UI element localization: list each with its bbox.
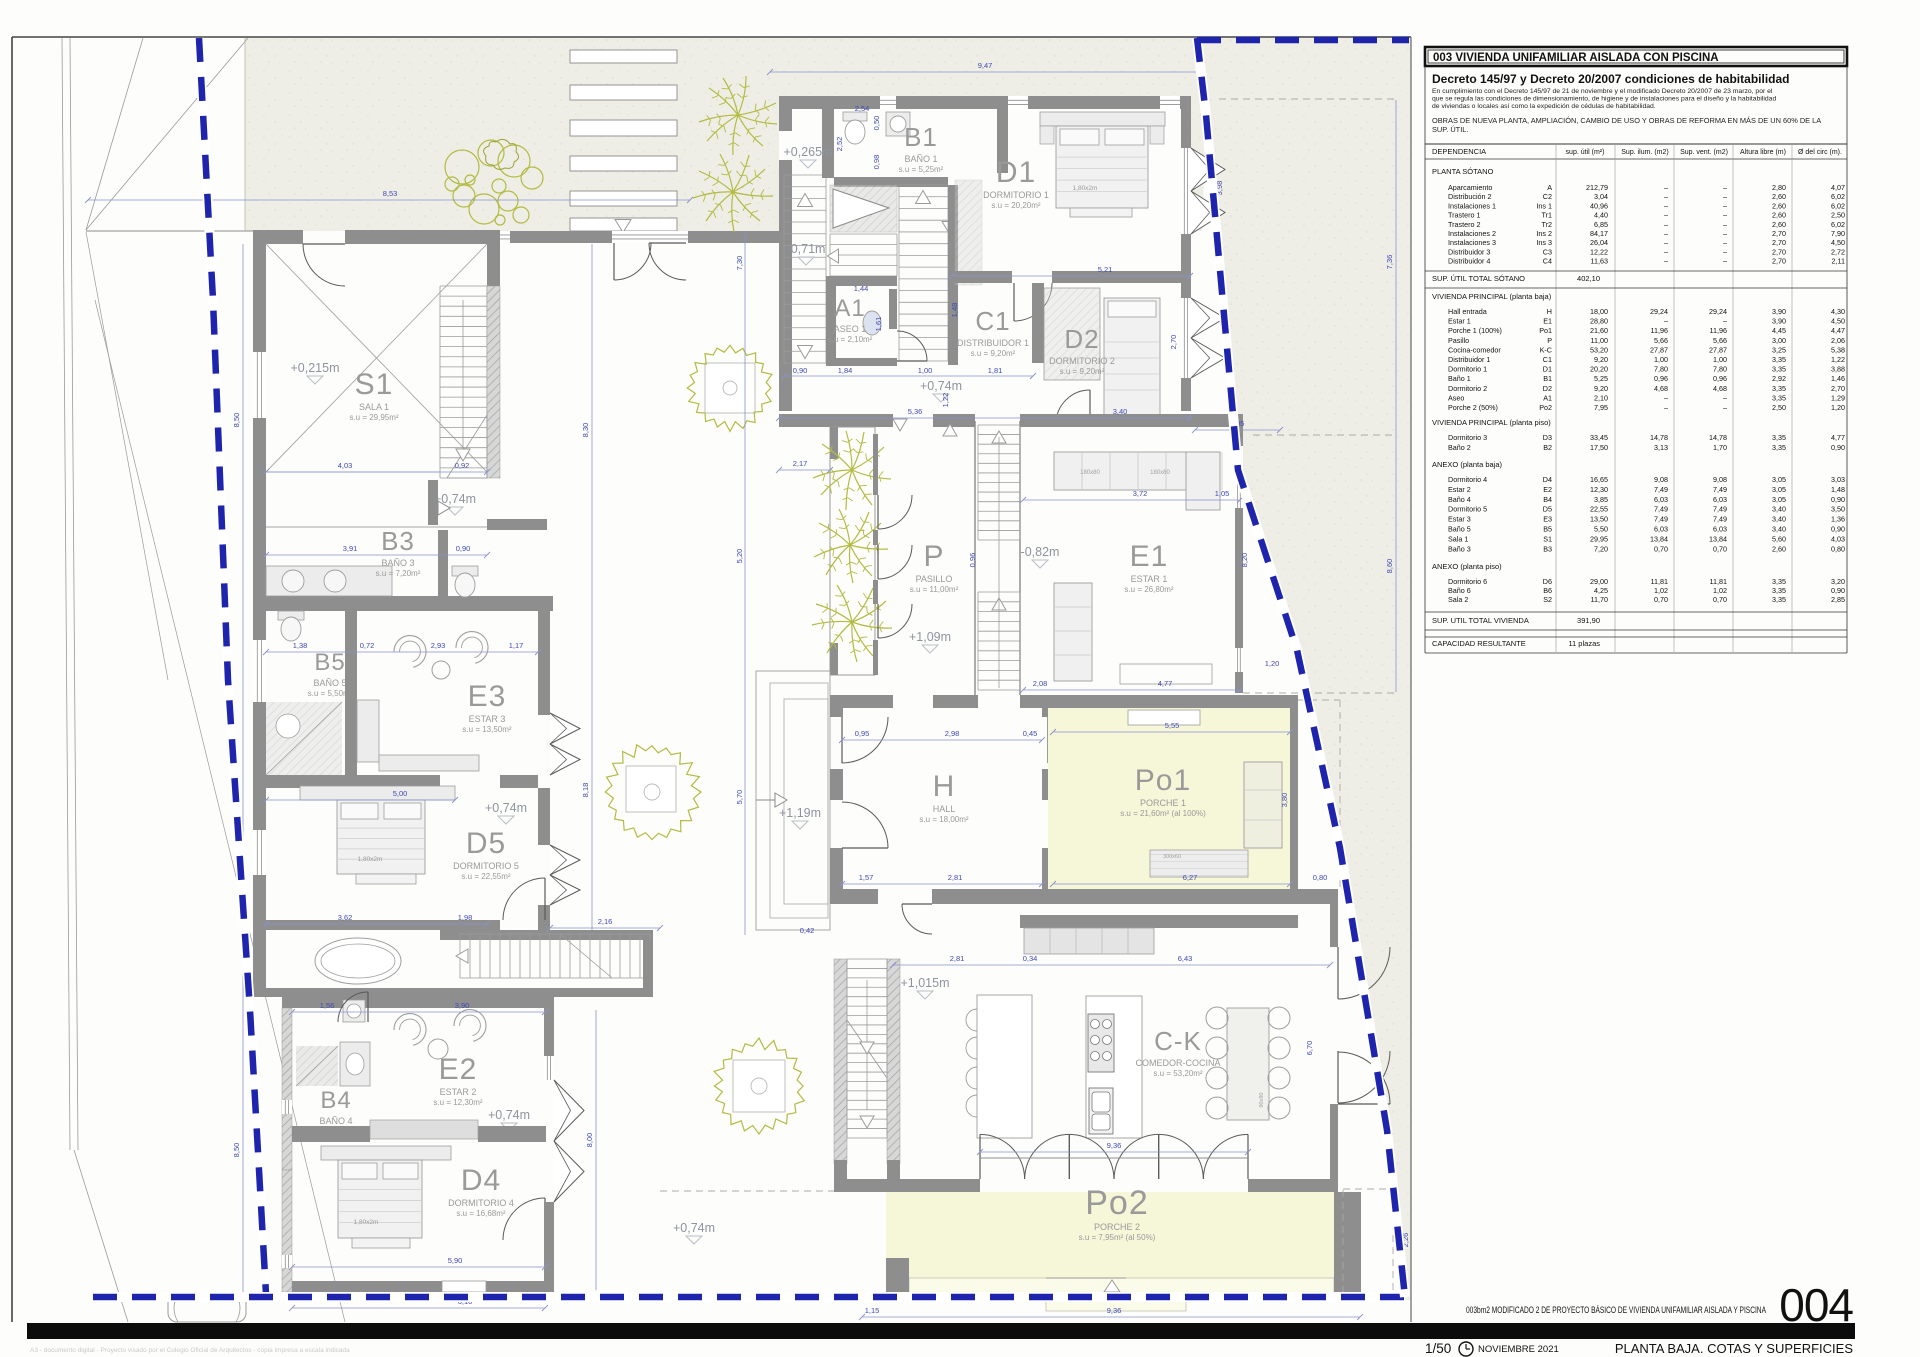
svg-text:Estar 2: Estar 2 [1448, 485, 1471, 494]
svg-text:E1: E1 [1130, 540, 1169, 573]
svg-text:3,85: 3,85 [1594, 495, 1608, 504]
svg-text:–: – [1723, 201, 1727, 210]
svg-text:B1: B1 [904, 122, 938, 152]
svg-text:11,63: 11,63 [1591, 257, 1608, 266]
svg-text:84,17: 84,17 [1590, 229, 1608, 238]
svg-text:C-K: C-K [1154, 1026, 1202, 1056]
svg-text:BAÑO 4: BAÑO 4 [319, 1116, 352, 1126]
svg-text:ANEXO (planta piso): ANEXO (planta piso) [1432, 562, 1502, 571]
svg-text:–: – [1723, 183, 1727, 192]
svg-text:–: – [1664, 220, 1668, 229]
svg-text:0,95: 0,95 [855, 729, 870, 738]
svg-text:5,60: 5,60 [1772, 534, 1786, 543]
svg-text:OBRAS DE NUEVA PLANTA, AMPLIAC: OBRAS DE NUEVA PLANTA, AMPLIACIÓN, CAMBI… [1432, 116, 1821, 125]
svg-text:Pasillo: Pasillo [1448, 336, 1469, 345]
svg-text:3,40: 3,40 [1772, 515, 1786, 524]
svg-text:2,06: 2,06 [1831, 336, 1845, 345]
svg-text:2,92: 2,92 [1772, 374, 1786, 383]
svg-text:Sala 2: Sala 2 [1448, 595, 1468, 604]
svg-text:s.u = 11,00m²: s.u = 11,00m² [910, 585, 959, 594]
svg-text:7,30: 7,30 [735, 256, 744, 271]
svg-text:1,20: 1,20 [1265, 659, 1280, 668]
svg-text:28,80: 28,80 [1590, 317, 1608, 326]
svg-text:3,03: 3,03 [1831, 475, 1845, 484]
svg-text:–: – [1664, 238, 1668, 247]
svg-text:S1: S1 [355, 368, 394, 401]
svg-text:20,20: 20,20 [1590, 365, 1608, 374]
svg-text:B3: B3 [1543, 544, 1552, 553]
svg-text:11 plazas: 11 plazas [1568, 639, 1600, 648]
svg-text:Ins 2: Ins 2 [1536, 229, 1552, 238]
svg-text:B1: B1 [1543, 374, 1552, 383]
svg-text:27,87: 27,87 [1709, 345, 1727, 354]
svg-text:D2: D2 [1543, 384, 1552, 393]
svg-text:3,40: 3,40 [1772, 505, 1786, 514]
svg-text:–: – [1723, 257, 1727, 266]
svg-text:2,72: 2,72 [1831, 247, 1845, 256]
svg-text:3,40: 3,40 [1772, 525, 1786, 534]
svg-text:2,60: 2,60 [1772, 201, 1786, 210]
svg-text:–: – [1664, 247, 1668, 256]
svg-text:H: H [1547, 307, 1552, 316]
svg-text:12,30: 12,30 [1590, 485, 1608, 494]
svg-text:–: – [1723, 238, 1727, 247]
svg-text:5,55: 5,55 [1165, 721, 1180, 730]
svg-text:ESTAR 2: ESTAR 2 [440, 1087, 477, 1097]
svg-text:Sala 1: Sala 1 [1448, 534, 1468, 543]
svg-text:3,05: 3,05 [1772, 495, 1786, 504]
svg-text:1,44: 1,44 [854, 284, 869, 293]
svg-text:E2: E2 [1543, 485, 1552, 494]
svg-text:+0,215m: +0,215m [291, 361, 340, 375]
svg-text:DEPENDENCIA: DEPENDENCIA [1432, 147, 1486, 156]
svg-text:E1: E1 [1543, 317, 1552, 326]
svg-text:2,60: 2,60 [1772, 544, 1786, 553]
svg-text:1,48: 1,48 [950, 303, 959, 318]
svg-text:D1: D1 [996, 156, 1036, 189]
svg-text:3,72: 3,72 [1133, 489, 1148, 498]
svg-text:0,45: 0,45 [1023, 729, 1038, 738]
svg-text:Trastero 2: Trastero 2 [1448, 220, 1481, 229]
svg-text:1,98: 1,98 [458, 913, 473, 922]
svg-text:0,70: 0,70 [1654, 544, 1668, 553]
svg-text:COMEDOR-COCINA: COMEDOR-COCINA [1136, 1058, 1221, 1068]
svg-text:2,93: 2,93 [431, 641, 446, 650]
svg-text:B5: B5 [1543, 525, 1552, 534]
svg-text:2,60: 2,60 [1772, 192, 1786, 201]
svg-text:Distribuidor 3: Distribuidor 3 [1448, 247, 1490, 256]
svg-text:9,36: 9,36 [1107, 1141, 1122, 1150]
svg-text:11,96: 11,96 [1710, 326, 1727, 335]
svg-text:PLANTA BAJA. COTAS Y SUPERFICI: PLANTA BAJA. COTAS Y SUPERFICIES [1615, 1341, 1853, 1356]
svg-text:1,00: 1,00 [1654, 355, 1668, 364]
svg-text:Aparcamiento: Aparcamiento [1448, 183, 1492, 192]
svg-text:VIVIENDA PRINCIPAL (planta pis: VIVIENDA PRINCIPAL (planta piso) [1432, 418, 1551, 427]
svg-text:2,81: 2,81 [948, 873, 963, 882]
svg-text:–: – [1723, 403, 1727, 412]
svg-text:H: H [933, 770, 956, 803]
svg-text:1/50: 1/50 [1425, 1341, 1451, 1356]
svg-text:18,00: 18,00 [1590, 307, 1608, 316]
svg-text:s.u = 5,25m²: s.u = 5,25m² [899, 165, 944, 174]
svg-text:13,84: 13,84 [1709, 534, 1727, 543]
svg-text:6,02: 6,02 [1831, 192, 1845, 201]
svg-text:ESTAR 3: ESTAR 3 [469, 714, 506, 724]
svg-text:14,78: 14,78 [1709, 433, 1727, 442]
svg-text:7,80: 7,80 [1654, 365, 1668, 374]
svg-text:Hall entrada: Hall entrada [1448, 307, 1487, 316]
svg-text:1,00: 1,00 [918, 366, 933, 375]
svg-text:Po1: Po1 [1135, 764, 1191, 797]
svg-text:–: – [1723, 317, 1727, 326]
svg-text:6,27: 6,27 [1183, 873, 1198, 882]
svg-text:1,02: 1,02 [1654, 586, 1668, 595]
svg-text:B4: B4 [320, 1087, 351, 1114]
svg-text:1,46: 1,46 [1831, 374, 1845, 383]
svg-text:3,13: 3,13 [1654, 443, 1668, 452]
svg-text:-0,82m: -0,82m [1021, 545, 1060, 559]
svg-text:C2: C2 [1543, 192, 1552, 201]
svg-text:12,22: 12,22 [1590, 247, 1608, 256]
svg-text:D5: D5 [1543, 505, 1552, 514]
svg-text:2,16: 2,16 [598, 917, 613, 926]
svg-text:Tr2: Tr2 [1541, 220, 1552, 229]
svg-text:+0,74m: +0,74m [488, 1108, 530, 1122]
svg-text:11,96: 11,96 [1651, 326, 1668, 335]
svg-text:s.u = 2,10m²: s.u = 2,10m² [828, 335, 873, 344]
svg-text:Dormitorio 1: Dormitorio 1 [1448, 365, 1487, 374]
svg-text:C4: C4 [1543, 257, 1552, 266]
svg-text:3,25: 3,25 [1772, 345, 1786, 354]
svg-text:3,90: 3,90 [455, 1001, 470, 1010]
svg-text:4,45: 4,45 [1772, 326, 1786, 335]
svg-text:3,40: 3,40 [1113, 407, 1128, 416]
svg-text:11,81: 11,81 [1651, 577, 1668, 586]
svg-text:1,80x2m: 1,80x2m [354, 1219, 379, 1226]
svg-text:2,81: 2,81 [950, 954, 965, 963]
svg-text:+0,265m: +0,265m [784, 145, 833, 159]
svg-text:0,70: 0,70 [1713, 544, 1727, 553]
svg-text:–: – [1664, 257, 1668, 266]
svg-text:3,35: 3,35 [1772, 393, 1786, 402]
svg-text:7,20: 7,20 [1594, 544, 1608, 553]
svg-text:180x80: 180x80 [1080, 470, 1100, 476]
svg-text:Dormitorio 6: Dormitorio 6 [1448, 577, 1487, 586]
svg-text:Porche 1 (100%): Porche 1 (100%) [1448, 326, 1502, 335]
svg-text:0,80: 0,80 [1831, 544, 1845, 553]
svg-text:8,00: 8,00 [585, 1133, 594, 1148]
svg-text:3,35: 3,35 [1772, 433, 1786, 442]
svg-text:Po2: Po2 [1539, 403, 1552, 412]
svg-text:8,53: 8,53 [383, 189, 398, 198]
svg-text:5,50: 5,50 [1594, 525, 1608, 534]
svg-text:K-C: K-C [1540, 345, 1552, 354]
svg-text:27,87: 27,87 [1650, 345, 1668, 354]
svg-text:14,78: 14,78 [1650, 433, 1668, 442]
svg-text:5,25: 5,25 [1594, 374, 1608, 383]
svg-text:5,90: 5,90 [448, 1256, 463, 1265]
svg-text:S1: S1 [1543, 534, 1552, 543]
svg-text:003 VIVIENDA UNIFAMILIAR AISLA: 003 VIVIENDA UNIFAMILIAR AISLADA CON PIS… [1433, 52, 1719, 64]
svg-text:0,80: 0,80 [1313, 873, 1328, 882]
svg-text:5,66: 5,66 [1713, 336, 1727, 345]
svg-text:+0,74m: +0,74m [920, 379, 962, 393]
svg-text:0,72: 0,72 [360, 641, 375, 650]
svg-text:–: – [1664, 183, 1668, 192]
svg-text:1,05: 1,05 [1215, 489, 1230, 498]
svg-text:5,21: 5,21 [1098, 265, 1113, 274]
svg-text:8,20: 8,20 [1240, 553, 1249, 568]
svg-text:2,54: 2,54 [855, 104, 870, 113]
svg-text:Baño 5: Baño 5 [1448, 525, 1471, 534]
svg-text:0,90: 0,90 [1831, 525, 1845, 534]
svg-text:B6: B6 [1543, 586, 1552, 595]
svg-text:Estar 1: Estar 1 [1448, 317, 1471, 326]
svg-text:Sup. vent. (m2): Sup. vent. (m2) [1680, 149, 1728, 156]
svg-text:402,10: 402,10 [1577, 274, 1600, 283]
svg-text:1,22: 1,22 [1831, 355, 1845, 364]
svg-text:6,03: 6,03 [1713, 495, 1727, 504]
svg-text:A1: A1 [1543, 393, 1552, 402]
svg-text:Instalaciones 2: Instalaciones 2 [1448, 229, 1496, 238]
svg-text:6,03: 6,03 [1713, 525, 1727, 534]
svg-text:6,85: 6,85 [1594, 220, 1608, 229]
svg-text:SALA 1: SALA 1 [359, 402, 389, 412]
svg-text:7,49: 7,49 [1713, 505, 1727, 514]
svg-text:5,36: 5,36 [908, 407, 923, 416]
svg-text:9,08: 9,08 [1654, 475, 1668, 484]
svg-text:D1: D1 [1543, 365, 1552, 374]
svg-text:9,20: 9,20 [1594, 384, 1608, 393]
svg-text:de viviendas o locales así com: de viviendas o locales así como la exped… [1432, 103, 1656, 110]
svg-text:3,90: 3,90 [1772, 307, 1786, 316]
svg-text:E3: E3 [468, 680, 507, 713]
svg-text:Ø del circ (m).: Ø del circ (m). [1798, 149, 1842, 156]
svg-text:DORMITORIO 2: DORMITORIO 2 [1049, 356, 1115, 366]
svg-text:+1,09m: +1,09m [909, 630, 951, 644]
svg-text:4,40: 4,40 [1594, 211, 1608, 220]
svg-text:212,79: 212,79 [1586, 183, 1608, 192]
svg-text:D4: D4 [461, 1164, 501, 1197]
svg-text:11,00: 11,00 [1591, 336, 1608, 345]
svg-text:–: – [1723, 192, 1727, 201]
svg-text:Distribuidor 1: Distribuidor 1 [1448, 355, 1490, 364]
svg-text:300x60: 300x60 [1163, 854, 1181, 860]
svg-text:s.u = 7,95m² (al 50%): s.u = 7,95m² (al 50%) [1079, 1233, 1156, 1242]
svg-text:6,03: 6,03 [1654, 495, 1668, 504]
svg-text:s.u = 53,20m²: s.u = 53,20m² [1153, 1069, 1202, 1078]
svg-text:2,60: 2,60 [1772, 211, 1786, 220]
svg-text:s.u = 9,20m²: s.u = 9,20m² [1060, 367, 1105, 376]
svg-text:1,15: 1,15 [865, 1306, 880, 1315]
svg-text:Cocina-comedor: Cocina-comedor [1448, 345, 1501, 354]
svg-text:1,84: 1,84 [838, 366, 853, 375]
svg-text:1,38: 1,38 [293, 641, 308, 650]
svg-text:3,35: 3,35 [1772, 577, 1786, 586]
svg-text:B3: B3 [381, 526, 415, 556]
svg-text:90x90: 90x90 [1259, 1093, 1265, 1108]
svg-text:3,62: 3,62 [338, 913, 353, 922]
svg-text:DORMITORIO 1: DORMITORIO 1 [983, 190, 1049, 200]
svg-text:7,90: 7,90 [1831, 229, 1845, 238]
svg-text:0,98: 0,98 [872, 155, 881, 170]
svg-text:ANEXO (planta baja): ANEXO (planta baja) [1432, 460, 1503, 469]
svg-text:0,90: 0,90 [793, 366, 808, 375]
svg-text:s.u = 18,00m²: s.u = 18,00m² [919, 815, 968, 824]
svg-text:DISTRIBUIDOR 1: DISTRIBUIDOR 1 [957, 338, 1029, 348]
svg-text:2,10: 2,10 [1594, 393, 1608, 402]
svg-text:1,70: 1,70 [1713, 443, 1727, 452]
svg-text:s.u = 29,95m²: s.u = 29,95m² [349, 413, 398, 422]
svg-text:4,50: 4,50 [1831, 238, 1845, 247]
svg-text:6,43: 6,43 [1178, 954, 1193, 963]
svg-text:003bm2 MODIFICADO 2 DE PROYE: 003bm2 MODIFICADO 2 DE PROYECTO BÁSICO D… [1466, 1305, 1766, 1315]
svg-text:Altura libre (m): Altura libre (m) [1740, 149, 1786, 156]
svg-text:2,98: 2,98 [945, 729, 960, 738]
svg-text:Po1: Po1 [1539, 326, 1552, 335]
svg-text:11,70: 11,70 [1591, 595, 1608, 604]
svg-text:2,52: 2,52 [835, 137, 844, 152]
svg-text:0,50: 0,50 [872, 116, 881, 131]
svg-text:CAPACIDAD RESULTANTE: CAPACIDAD RESULTANTE [1432, 639, 1526, 648]
svg-text:9,47: 9,47 [978, 61, 993, 70]
svg-text:4,47: 4,47 [1831, 326, 1845, 335]
svg-text:3,50: 3,50 [1831, 505, 1845, 514]
svg-text:3,35: 3,35 [1772, 595, 1786, 604]
svg-text:VIVIENDA PRINCIPAL (planta baj: VIVIENDA PRINCIPAL (planta baja) [1432, 292, 1552, 301]
svg-text:11,81: 11,81 [1710, 577, 1727, 586]
svg-text:6,03: 6,03 [1654, 525, 1668, 534]
svg-text:BAÑO 5: BAÑO 5 [313, 678, 346, 688]
svg-text:0,90: 0,90 [1831, 586, 1845, 595]
svg-text:2,11: 2,11 [1832, 257, 1845, 266]
svg-text:2,70: 2,70 [1831, 384, 1845, 393]
svg-text:2,17: 2,17 [793, 459, 808, 468]
svg-text:1,22: 1,22 [941, 393, 950, 408]
svg-text:29,00: 29,00 [1590, 577, 1608, 586]
svg-text:4,77: 4,77 [1831, 433, 1845, 442]
svg-text:+1,19m: +1,19m [779, 806, 821, 820]
svg-text:2,80: 2,80 [1772, 183, 1786, 192]
svg-text:Estar 3: Estar 3 [1448, 515, 1471, 524]
svg-text:s.u = 21,60m² (al 100%): s.u = 21,60m² (al 100%) [1120, 809, 1206, 818]
svg-text:Distribución 2: Distribución 2 [1448, 192, 1492, 201]
svg-text:A3 - documento digital - Proye: A3 - documento digital - Proyecto visado… [30, 1347, 350, 1354]
svg-text:Dormitorio 4: Dormitorio 4 [1448, 475, 1487, 484]
svg-text:–: – [1723, 220, 1727, 229]
svg-text:3,91: 3,91 [343, 544, 358, 553]
svg-text:HALL: HALL [933, 804, 956, 814]
svg-text:Decreto 145/97 y Decreto 20/20: Decreto 145/97 y Decreto 20/2007 condici… [1432, 72, 1789, 86]
svg-text:4,50: 4,50 [1831, 317, 1845, 326]
svg-text:3,20: 3,20 [1831, 577, 1845, 586]
svg-text:Instalaciones 3: Instalaciones 3 [1448, 238, 1496, 247]
svg-text:Baño 2: Baño 2 [1448, 443, 1471, 452]
svg-text:2,70: 2,70 [1772, 238, 1786, 247]
svg-text:8,50: 8,50 [232, 1143, 241, 1158]
svg-text:0,90: 0,90 [1831, 443, 1845, 452]
svg-text:8,50: 8,50 [232, 413, 241, 428]
svg-text:Baño 1: Baño 1 [1448, 374, 1471, 383]
svg-text:s.u = 20,20m²: s.u = 20,20m² [991, 201, 1040, 210]
svg-text:5,20: 5,20 [735, 549, 744, 564]
svg-text:Dormitorio 5: Dormitorio 5 [1448, 505, 1487, 514]
svg-text:+1,015m: +1,015m [901, 976, 950, 990]
svg-text:–: – [1664, 229, 1668, 238]
svg-text:4,68: 4,68 [1654, 384, 1668, 393]
svg-text:B5: B5 [314, 649, 345, 676]
svg-text:ESTAR 1: ESTAR 1 [1131, 574, 1168, 584]
svg-text:53,20: 53,20 [1590, 345, 1608, 354]
svg-text:2,50: 2,50 [1772, 403, 1786, 412]
svg-text:BAÑO 1: BAÑO 1 [904, 154, 937, 164]
svg-text:Porche 2 (50%): Porche 2 (50%) [1448, 403, 1498, 412]
svg-text:s.u = 7,20m²: s.u = 7,20m² [376, 569, 421, 578]
svg-text:0,90: 0,90 [456, 544, 471, 553]
svg-text:29,95: 29,95 [1590, 534, 1608, 543]
svg-text:Tr1: Tr1 [1541, 211, 1552, 220]
svg-text:2,70: 2,70 [1772, 247, 1786, 256]
svg-text:0,70: 0,70 [1654, 595, 1668, 604]
svg-text:PORCHE 1: PORCHE 1 [1140, 798, 1186, 808]
svg-text:4,03: 4,03 [1831, 534, 1845, 543]
svg-text:1,00: 1,00 [1713, 355, 1727, 364]
svg-text:–: – [1723, 247, 1727, 256]
svg-text:Aseo: Aseo [1448, 393, 1464, 402]
svg-text:22,55: 22,55 [1590, 505, 1608, 514]
svg-text:0,70: 0,70 [1713, 595, 1727, 604]
svg-text:SUP. ÚTIL TOTAL SÓTANO: SUP. ÚTIL TOTAL SÓTANO [1432, 274, 1525, 283]
svg-text:5,00: 5,00 [393, 789, 408, 798]
svg-text:7,49: 7,49 [1713, 515, 1727, 524]
svg-text:391,90: 391,90 [1577, 616, 1600, 625]
svg-text:+0,74m: +0,74m [673, 1221, 715, 1235]
svg-text:0,92: 0,92 [455, 461, 470, 470]
svg-text:S2: S2 [1543, 595, 1552, 604]
svg-text:3,35: 3,35 [1772, 355, 1786, 364]
svg-text:Baño 6: Baño 6 [1448, 586, 1471, 595]
svg-text:D5: D5 [466, 827, 506, 860]
svg-text:s.u = 12,30m²: s.u = 12,30m² [433, 1098, 482, 1107]
svg-text:1,20: 1,20 [1831, 403, 1845, 412]
svg-text:3,35: 3,35 [1772, 443, 1786, 452]
svg-text:1,81: 1,81 [988, 366, 1003, 375]
svg-text:–: – [1664, 403, 1668, 412]
svg-text:7,49: 7,49 [1654, 485, 1668, 494]
svg-text:8,60: 8,60 [1385, 559, 1394, 574]
svg-text:C1: C1 [1543, 355, 1552, 364]
svg-text:–: – [1664, 192, 1668, 201]
svg-text:29,24: 29,24 [1650, 307, 1668, 316]
svg-text:D2: D2 [1064, 324, 1099, 354]
svg-text:8,30: 8,30 [581, 423, 590, 438]
svg-text:B2: B2 [1543, 443, 1552, 452]
svg-text:7,80: 7,80 [1713, 365, 1727, 374]
svg-text:40,96: 40,96 [1590, 201, 1608, 210]
svg-text:Dormitorio 3: Dormitorio 3 [1448, 433, 1487, 442]
svg-text:3,05: 3,05 [1772, 485, 1786, 494]
svg-text:C1: C1 [975, 306, 1010, 336]
svg-text:3,00: 3,00 [1772, 336, 1786, 345]
svg-text:E2: E2 [439, 1053, 478, 1086]
svg-text:8,18: 8,18 [581, 783, 590, 798]
svg-text:7,95: 7,95 [1594, 403, 1608, 412]
svg-text:4,68: 4,68 [1713, 384, 1727, 393]
svg-text:3,35: 3,35 [1772, 384, 1786, 393]
svg-text:2,85: 2,85 [1831, 595, 1845, 604]
svg-text:D3: D3 [1543, 433, 1552, 442]
svg-text:s.u = 26,80m²: s.u = 26,80m² [1124, 585, 1173, 594]
